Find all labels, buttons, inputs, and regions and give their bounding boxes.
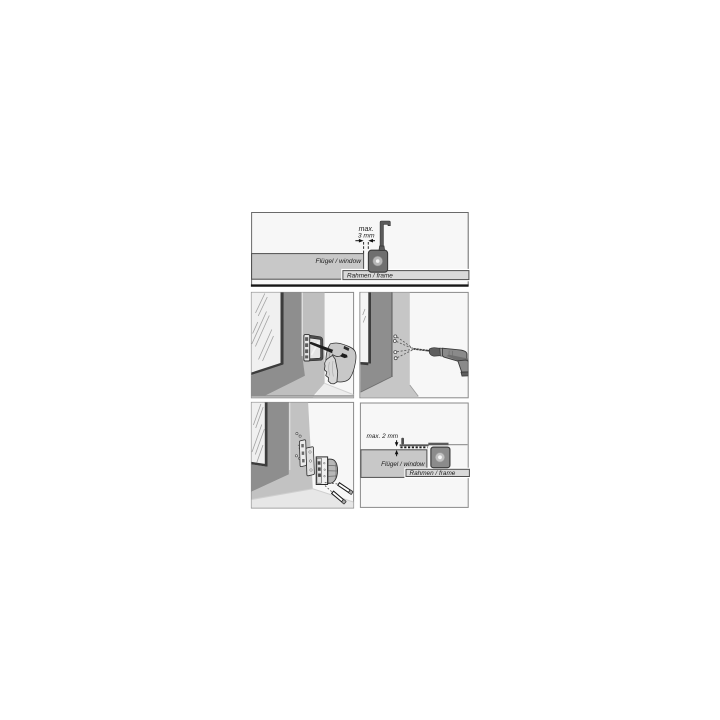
svg-text:3 mm: 3 mm bbox=[358, 233, 375, 240]
svg-text:Rahmen / frame: Rahmen / frame bbox=[410, 470, 456, 477]
svg-text:max. 2 mm: max. 2 mm bbox=[367, 433, 399, 440]
svg-text:Flügel / window: Flügel / window bbox=[316, 258, 363, 265]
svg-text:Rahmen / frame: Rahmen / frame bbox=[347, 273, 393, 280]
svg-text:Flügel / window: Flügel / window bbox=[381, 461, 425, 468]
